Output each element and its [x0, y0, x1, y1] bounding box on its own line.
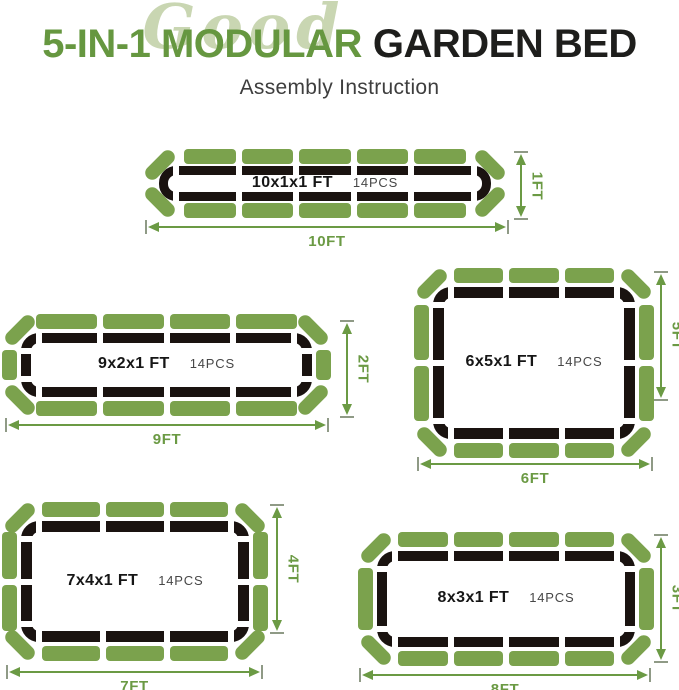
garden-bed-assembly-poster: Good 5-IN-1 MODULARGARDEN BED Assembly I… [0, 0, 679, 690]
frame-gap [291, 385, 297, 399]
dim-arrow-horizontal [418, 463, 652, 465]
frame-gap [236, 536, 251, 542]
bed-label-group: 6x5x1 FT14PCS [444, 353, 624, 373]
top-side-panel [454, 532, 504, 547]
dim-end-tick [654, 271, 668, 273]
bottom-side-panel [509, 443, 558, 458]
right-side-panel [253, 532, 268, 579]
arrowhead-left-icon [9, 667, 20, 677]
arrowhead-down-icon [656, 387, 666, 398]
frame-gap [431, 418, 446, 424]
dim-arrow-horizontal [146, 226, 508, 228]
top-side-panel [106, 502, 164, 517]
dim-arrow-vertical [660, 535, 662, 662]
frame-gap [97, 385, 103, 399]
left-side-panel [414, 305, 429, 360]
frame-gap [228, 519, 234, 534]
frame-gap [228, 629, 234, 644]
frame-gap [36, 331, 42, 345]
frame-gap [236, 621, 251, 627]
frame-gap [19, 376, 33, 382]
bottom-side-panel [106, 646, 164, 661]
bed-diagram-6x5x1: 6x5x1 FT14PCS [414, 268, 654, 458]
frame-gap [559, 285, 565, 300]
frame-gap [164, 519, 170, 534]
left-side-panel [2, 532, 17, 579]
dim-end-tick [340, 416, 354, 418]
bottom-side-panel [509, 651, 559, 666]
bed-diagram-8x3x1: 8x3x1 FT14PCS [358, 532, 654, 666]
arrowhead-right-icon [249, 667, 260, 677]
bottom-side-panel [398, 651, 448, 666]
dim-arrow-horizontal [7, 671, 262, 673]
frame-gap [19, 348, 33, 354]
top-side-panel [357, 149, 409, 164]
top-side-panel [454, 268, 503, 283]
bed-pcs-label: 14PCS [557, 353, 602, 371]
dim-arrow-horizontal [360, 674, 650, 676]
left-side-panel [414, 366, 429, 421]
frame-gap [392, 549, 398, 563]
top-side-panel [170, 502, 228, 517]
dim-line [346, 325, 348, 413]
frame-gap [431, 302, 446, 308]
frame-gap [164, 385, 170, 399]
top-side-panel [242, 149, 294, 164]
right-side-panel [316, 350, 331, 380]
dim-end-tick [514, 218, 528, 220]
dim-line [150, 226, 504, 228]
top-side-panel [565, 268, 614, 283]
frame-gap [614, 285, 620, 300]
arrowhead-up-icon [342, 323, 352, 334]
dim-width-label: 7FT [7, 678, 262, 690]
bottom-side-panel [357, 203, 409, 218]
frame-gap [559, 549, 565, 563]
dim-end-tick [514, 151, 528, 153]
bed-pcs-label: 14PCS [353, 174, 398, 192]
bottom-side-panel [184, 203, 236, 218]
frame-gap [448, 549, 454, 563]
dim-line [276, 509, 278, 629]
bed-size-label: 9x2x1 FT [98, 355, 170, 373]
dim-width-label: 10FT [146, 233, 508, 250]
top-side-panel [509, 268, 558, 283]
bed-label-group: 10x1x1 FT14PCS [168, 174, 482, 194]
dim-end-tick [6, 665, 8, 679]
bed-size-label: 6x5x1 FT [466, 353, 538, 371]
frame-gap [614, 549, 620, 563]
left-side-panel [358, 568, 373, 630]
frame-gap [19, 621, 34, 627]
frame-gap [100, 519, 106, 534]
frame-gap [614, 426, 620, 441]
top-side-panel [236, 314, 297, 329]
bottom-side-panel [242, 203, 294, 218]
frame-gap [230, 385, 236, 399]
bottom-side-panel [170, 646, 228, 661]
bed-pcs-label: 14PCS [190, 355, 235, 373]
dim-arrow-vertical [346, 321, 348, 417]
dim-width-label: 8FT [360, 681, 650, 690]
top-side-panel [299, 149, 351, 164]
dim-line [422, 463, 648, 465]
bed-size-label: 10x1x1 FT [252, 174, 333, 192]
frame-gap [614, 635, 620, 649]
bed-pcs-label: 14PCS [529, 589, 574, 607]
frame-gap [100, 629, 106, 644]
arrowhead-right-icon [637, 670, 648, 680]
frame-gap [36, 519, 42, 534]
frame-gap [559, 426, 565, 441]
dim-line [660, 539, 662, 658]
page-title: 5-IN-1 MODULARGARDEN BED [0, 22, 679, 66]
frame-gap [622, 418, 637, 424]
dim-end-tick [340, 320, 354, 322]
dim-arrow-vertical [520, 152, 522, 219]
dim-end-tick [417, 457, 419, 471]
right-side-panel [639, 568, 654, 630]
bottom-side-panel [236, 401, 297, 416]
bottom-side-panel [414, 203, 466, 218]
dim-line [11, 671, 258, 673]
dim-end-tick [261, 665, 263, 679]
arrowhead-right-icon [495, 222, 506, 232]
dim-end-tick [654, 661, 668, 663]
dim-end-tick [359, 668, 361, 682]
dim-height-label: 3FT [669, 584, 679, 612]
arrowhead-left-icon [420, 459, 431, 469]
frame-gap [36, 385, 42, 399]
bed-label-group: 9x2x1 FT14PCS [31, 355, 302, 375]
dim-arrow-horizontal [6, 424, 328, 426]
arrowhead-left-icon [8, 420, 19, 430]
arrowhead-down-icon [656, 649, 666, 660]
dim-end-tick [145, 220, 147, 234]
dim-line [660, 276, 662, 396]
bed-label-group: 8x3x1 FT14PCS [387, 589, 625, 609]
bottom-side-panel [42, 646, 100, 661]
arrowhead-right-icon [315, 420, 326, 430]
frame-gap [448, 426, 454, 441]
arrowhead-down-icon [516, 206, 526, 217]
frame-gap [291, 331, 297, 345]
bed-diagram-10x1x1: 10x1x1 FT14PCS [142, 149, 508, 218]
dim-end-tick [270, 632, 284, 634]
frame-gap [375, 566, 389, 572]
dim-arrow-vertical [660, 272, 662, 400]
arrowhead-down-icon [342, 404, 352, 415]
arrowhead-up-icon [656, 537, 666, 548]
frame-gap [623, 566, 637, 572]
frame-gap [164, 331, 170, 345]
frame-gap [448, 635, 454, 649]
top-side-panel [103, 314, 164, 329]
right-side-panel [253, 585, 268, 632]
bed-pcs-label: 14PCS [158, 572, 203, 590]
bottom-side-panel [454, 443, 503, 458]
bed-label-group: 7x4x1 FT14PCS [32, 572, 238, 592]
arrowhead-down-icon [272, 620, 282, 631]
bed-size-label: 8x3x1 FT [438, 589, 510, 607]
frame-gap [503, 426, 509, 441]
top-side-panel [414, 149, 466, 164]
top-side-panel [36, 314, 97, 329]
dim-height-label: 2FT [355, 355, 372, 383]
subtitle: Assembly Instruction [0, 76, 679, 100]
dim-end-tick [5, 418, 7, 432]
frame-gap [300, 348, 314, 354]
dim-height-label: 4FT [285, 555, 302, 583]
arrowhead-up-icon [656, 274, 666, 285]
dim-end-tick [651, 457, 653, 471]
top-side-panel [184, 149, 236, 164]
frame-gap [503, 549, 509, 563]
frame-gap [503, 635, 509, 649]
dim-line [10, 424, 324, 426]
frame-gap [448, 285, 454, 300]
right-side-panel [639, 366, 654, 421]
top-side-panel [565, 532, 615, 547]
bottom-side-panel [299, 203, 351, 218]
dim-width-label: 9FT [6, 431, 328, 448]
arrowhead-right-icon [639, 459, 650, 469]
top-side-panel [509, 532, 559, 547]
bottom-side-panel [565, 651, 615, 666]
frame-gap [19, 536, 34, 542]
bed-size-label: 7x4x1 FT [67, 572, 139, 590]
arrowhead-up-icon [272, 507, 282, 518]
dim-end-tick [270, 504, 284, 506]
dim-height-label: 5FT [669, 322, 679, 350]
bed-diagram-9x2x1: 9x2x1 FT14PCS [2, 314, 331, 416]
left-side-panel [2, 350, 17, 380]
dim-arrow-vertical [276, 505, 278, 633]
frame-gap [375, 626, 389, 632]
title-part-dark: GARDEN BED [373, 22, 637, 66]
frame-gap [559, 635, 565, 649]
frame-gap [236, 579, 251, 585]
dim-width-label: 6FT [418, 470, 652, 487]
frame-gap [164, 629, 170, 644]
dim-end-tick [654, 534, 668, 536]
dim-line [364, 674, 646, 676]
bottom-side-panel [454, 651, 504, 666]
left-side-panel [2, 585, 17, 632]
frame-gap [36, 629, 42, 644]
title-part-green: 5-IN-1 MODULAR [42, 22, 362, 66]
frame-gap [392, 635, 398, 649]
bed-diagram-7x4x1: 7x4x1 FT14PCS [2, 502, 268, 661]
arrowhead-up-icon [516, 154, 526, 165]
top-side-panel [42, 502, 100, 517]
frame-gap [622, 360, 637, 366]
dim-end-tick [327, 418, 329, 432]
dim-height-label: 1FT [529, 171, 546, 199]
arrowhead-left-icon [148, 222, 159, 232]
bottom-side-panel [170, 401, 231, 416]
frame-gap [97, 331, 103, 345]
frame-gap [622, 302, 637, 308]
frame-gap [230, 331, 236, 345]
dim-end-tick [507, 220, 509, 234]
dim-end-tick [649, 668, 651, 682]
frame-gap [503, 285, 509, 300]
bottom-side-panel [103, 401, 164, 416]
arrowhead-left-icon [362, 670, 373, 680]
frame-gap [300, 376, 314, 382]
bottom-side-panel [565, 443, 614, 458]
right-side-panel [639, 305, 654, 360]
top-side-panel [398, 532, 448, 547]
bottom-side-panel [36, 401, 97, 416]
frame-gap [623, 626, 637, 632]
dim-end-tick [654, 399, 668, 401]
top-side-panel [170, 314, 231, 329]
